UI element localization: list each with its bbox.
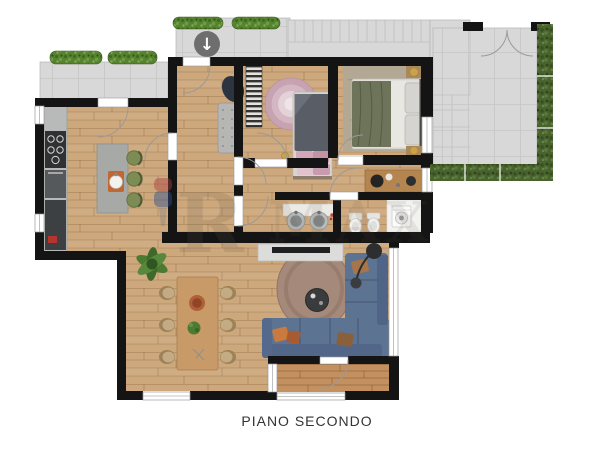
decor-bowl-1: [371, 175, 384, 188]
down-arrow-icon: ↓: [200, 35, 214, 55]
planter-1: [50, 51, 102, 64]
balcony-railing-bottom: [277, 393, 345, 400]
cushion-brown: [336, 332, 354, 347]
wall-hall-bedroom2: [234, 66, 243, 157]
sofa-back-bottom: [270, 344, 382, 357]
pillow-1: [405, 83, 422, 113]
island-sink: [110, 176, 123, 189]
bar-stools: [127, 151, 142, 207]
floor-plan-title: PIANO SECONDO: [241, 413, 372, 429]
wall-bottom-2: [190, 391, 277, 400]
wall-balcony-top-left: [277, 356, 320, 364]
coffee-table: [306, 289, 329, 312]
wall-kitchen-bottom: [35, 251, 125, 260]
table-lamp-2: [410, 147, 418, 155]
wall-dining-left: [117, 251, 126, 400]
wall-kitchen-top-left: [35, 98, 98, 107]
wall-bottom-1: [117, 391, 143, 400]
window-left-1: [35, 106, 44, 124]
window-balcony-left: [268, 364, 277, 392]
wall-terrace-stub-left: [463, 22, 483, 31]
wall-top-main: [210, 57, 433, 66]
watermark-letter-r: R: [176, 176, 245, 272]
planter-3: [173, 17, 223, 29]
table-plant: [188, 322, 201, 335]
door-band-entrance: [183, 57, 210, 66]
decor-item: [396, 183, 400, 187]
stairwell: [288, 20, 430, 58]
wall-kitchen-right-upper: [168, 57, 177, 133]
hedge-right: [537, 24, 553, 181]
double-bed: [352, 79, 423, 149]
corridor: [365, 170, 422, 192]
door-band-bedroom2: [255, 159, 287, 167]
oven: [45, 170, 66, 198]
door-band-kitchen-hall: [168, 133, 177, 160]
stairs-direction-badge: ↓: [194, 31, 220, 57]
headboard: [293, 176, 332, 180]
door-band-master: [338, 156, 363, 165]
sofa-armrest: [262, 318, 272, 358]
window-dining-bottom: [143, 392, 190, 400]
window-left-2: [35, 214, 44, 232]
table-lamp-1: [410, 68, 418, 76]
hedge-bottom: [430, 164, 537, 181]
sink-faucet: [114, 173, 118, 177]
wall-master-bottom: [363, 155, 421, 165]
terrace: [433, 28, 537, 180]
master-bedroom: [343, 66, 423, 155]
door-band-balcony: [320, 357, 348, 364]
coffee-machine: [48, 236, 57, 243]
sofa-back-right: [377, 255, 388, 325]
window-master-right: [422, 117, 432, 153]
decor-bowl-2: [406, 176, 416, 186]
wall-balcony-top-right: [348, 356, 389, 364]
decor-flower: [386, 174, 393, 181]
planter-4: [232, 17, 280, 29]
watermark-letters-max: MAX: [268, 190, 435, 256]
striped-runner-rug: [246, 66, 262, 127]
planter-2: [108, 51, 157, 64]
terracotta-bowl-inner: [192, 298, 202, 308]
floor-plan-drawing: ↓: [0, 0, 600, 450]
door-band-kitchen-terrace: [98, 98, 128, 107]
top-left-balcony: [40, 62, 168, 99]
floor-plan-canvas: ↓: [0, 0, 600, 450]
wall-balcony-left-stub: [268, 356, 277, 364]
pillow-2: [405, 115, 422, 145]
wall-balcony-right: [389, 356, 399, 400]
balcony-deck: [277, 364, 389, 392]
wall-bedroom2-bottom-right: [287, 158, 328, 168]
window-living-right: [389, 248, 398, 356]
wall-bedrooms-divider: [328, 57, 338, 158]
cushion-rust: [286, 330, 301, 344]
